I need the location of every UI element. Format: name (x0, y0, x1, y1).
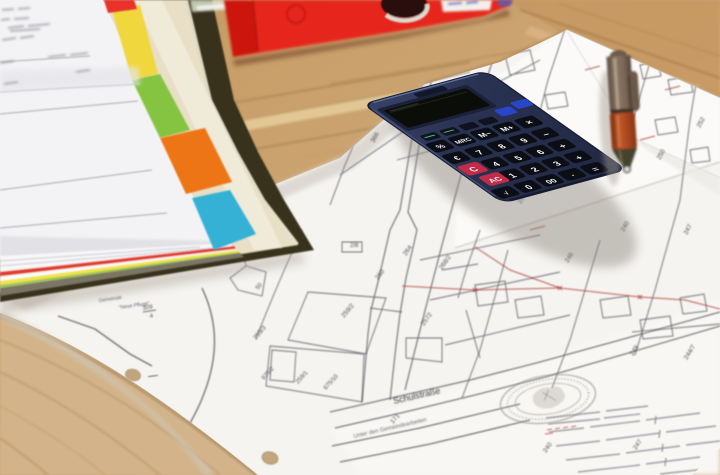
svg-text:2/8: 2/8 (350, 243, 359, 249)
